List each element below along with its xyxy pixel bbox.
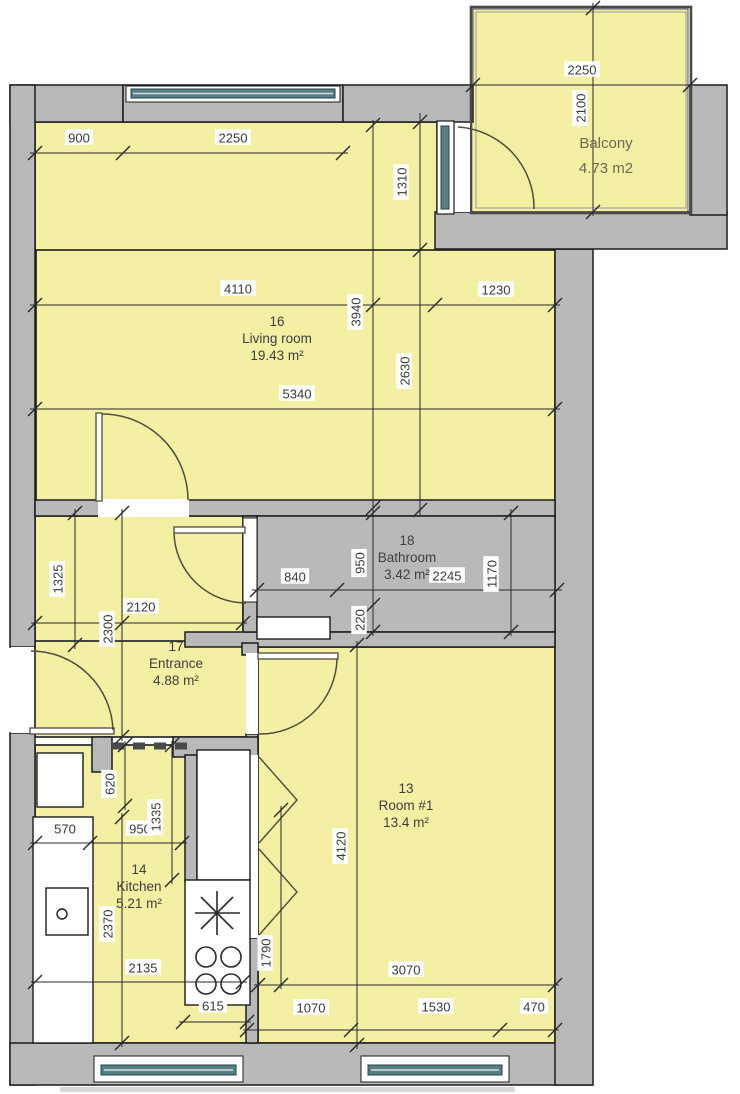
svg-text:2245: 2245 — [433, 569, 462, 584]
dim-label: 570 — [51, 820, 79, 836]
svg-text:1070: 1070 — [297, 1001, 326, 1016]
svg-text:Room #1: Room #1 — [379, 798, 434, 813]
svg-text:840: 840 — [284, 570, 306, 585]
svg-text:3070: 3070 — [392, 963, 421, 978]
svg-text:13.4 m²: 13.4 m² — [383, 815, 429, 830]
dim-label: 1230 — [478, 281, 514, 297]
svg-text:Bathroom: Bathroom — [378, 550, 437, 565]
svg-text:1310: 1310 — [395, 168, 410, 197]
dim-label: 2100 — [572, 90, 588, 126]
svg-text:1325: 1325 — [51, 565, 66, 594]
svg-text:2370: 2370 — [101, 910, 116, 939]
svg-text:1170: 1170 — [485, 560, 500, 588]
dim-label: 1530 — [418, 998, 454, 1014]
svg-text:Living room: Living room — [242, 331, 312, 346]
svg-text:5340: 5340 — [283, 387, 312, 402]
dim-label: 2245 — [429, 567, 465, 583]
svg-text:Balcony: Balcony — [579, 135, 633, 152]
svg-text:2120: 2120 — [127, 600, 156, 615]
kitchen-fridge — [37, 753, 83, 807]
gas-burner-icon — [195, 891, 240, 935]
dim-label: 220 — [351, 606, 367, 634]
room1-floor — [258, 647, 555, 1043]
svg-text:470: 470 — [523, 1000, 545, 1015]
dim-label: 1790 — [257, 935, 273, 971]
svg-text:1790: 1790 — [259, 939, 274, 968]
svg-text:3.42 m²: 3.42 m² — [384, 567, 430, 582]
dim-label: 840 — [281, 568, 309, 584]
dim-label: 950 — [351, 549, 367, 577]
svg-text:13: 13 — [398, 781, 413, 796]
floor-plan-canvas: 9002250411012303940263013105340225021008… — [0, 0, 740, 1094]
dim-label: 2120 — [123, 598, 159, 614]
dim-label: 1310 — [393, 164, 409, 200]
svg-text:620: 620 — [103, 773, 118, 795]
dim-label: 1335 — [147, 799, 163, 835]
svg-text:2250: 2250 — [219, 131, 248, 146]
svg-text:Entrance: Entrance — [149, 656, 203, 671]
svg-text:2100: 2100 — [574, 94, 589, 123]
bathroom-shelf — [257, 617, 330, 639]
svg-text:1530: 1530 — [422, 1000, 451, 1015]
wardrobe — [197, 750, 250, 880]
svg-text:16: 16 — [269, 314, 284, 329]
svg-text:5.21 m²: 5.21 m² — [116, 896, 162, 911]
entrance-floor-lower — [35, 641, 248, 737]
dim-label: 2630 — [396, 353, 412, 389]
dim-label: 3070 — [388, 961, 424, 977]
svg-text:900: 900 — [68, 131, 90, 146]
svg-text:220: 220 — [353, 609, 368, 631]
room1-window — [361, 1056, 509, 1082]
svg-text:4.73 m2: 4.73 m2 — [579, 160, 633, 177]
dim-label: 1070 — [293, 999, 329, 1015]
living-room-window — [126, 86, 340, 102]
dim-label: 2250 — [215, 129, 251, 145]
dim-label: 4120 — [332, 828, 348, 864]
svg-text:17: 17 — [168, 639, 183, 654]
svg-text:4.88 m²: 4.88 m² — [153, 673, 199, 688]
svg-text:18: 18 — [399, 533, 414, 548]
dim-label: 2300 — [99, 611, 115, 647]
dim-label: 1325 — [49, 561, 65, 597]
svg-text:2250: 2250 — [568, 63, 597, 78]
svg-text:14: 14 — [131, 862, 147, 877]
svg-text:570: 570 — [54, 822, 76, 837]
svg-text:615: 615 — [202, 999, 224, 1014]
dim-label: 900 — [65, 129, 93, 145]
dim-label: 2370 — [99, 906, 115, 942]
svg-text:4110: 4110 — [224, 282, 252, 297]
svg-text:Kitchen: Kitchen — [116, 879, 161, 894]
svg-text:3940: 3940 — [349, 298, 364, 327]
floor-plan-drawing: 9002250411012303940263013105340225021008… — [0, 0, 740, 1094]
dim-label: 4110 — [220, 280, 256, 296]
svg-text:1230: 1230 — [482, 283, 511, 298]
dim-label: 470 — [520, 998, 548, 1014]
svg-text:950: 950 — [353, 552, 368, 574]
dim-label: 3940 — [347, 294, 363, 330]
dim-label: 5340 — [279, 385, 315, 401]
svg-text:2135: 2135 — [129, 961, 158, 976]
entrance-floor — [35, 516, 243, 646]
svg-text:2630: 2630 — [398, 357, 413, 386]
dim-label: 2135 — [125, 959, 161, 975]
dim-label: 615 — [199, 997, 227, 1013]
dim-label: 1170 — [483, 556, 499, 592]
svg-text:19.43 m²: 19.43 m² — [250, 348, 304, 363]
svg-text:4120: 4120 — [334, 832, 349, 861]
svg-text:1335: 1335 — [149, 803, 164, 832]
balcony-door-recess — [453, 123, 470, 212]
kitchen-window — [94, 1056, 243, 1082]
dim-label: 2250 — [564, 61, 600, 77]
dim-label: 620 — [101, 770, 117, 798]
svg-text:2300: 2300 — [101, 615, 116, 644]
bottom-shadow — [60, 1087, 515, 1092]
living-room-floor-ext — [36, 250, 555, 502]
